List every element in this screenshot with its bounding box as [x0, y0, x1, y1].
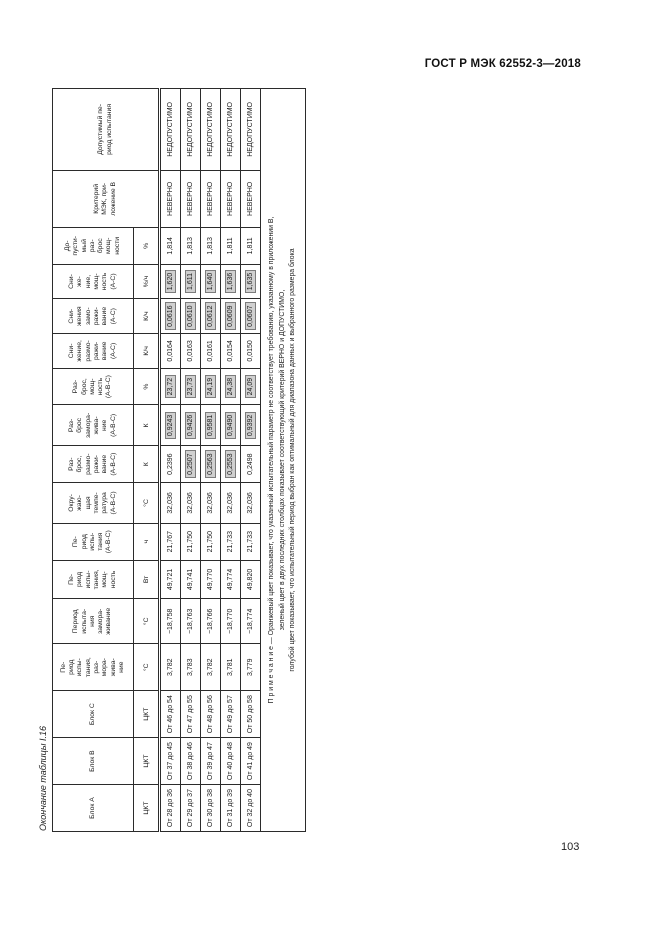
header-row: Блок АБлок ВБлок СПе- риод испы- тания, …: [53, 89, 134, 832]
unit-cell: °С: [134, 599, 160, 644]
data-cell: 23,73: [181, 368, 201, 405]
unit-cell: Вт: [134, 560, 160, 599]
highlighted-value: 23,73: [185, 375, 196, 399]
data-cell: От 29 до 37: [181, 785, 201, 832]
data-cell: −18,774: [241, 599, 261, 644]
highlighted-value: 23,72: [165, 375, 176, 399]
data-cell: От 41 до 49: [241, 738, 261, 785]
unit-cell: К: [134, 446, 160, 483]
table-head: Блок АБлок ВБлок СПе- риод испы- тания, …: [53, 89, 160, 832]
data-cell: 0,2498: [241, 446, 261, 483]
column-header: До- пусти- мый раз- брос мощ- ности: [53, 227, 134, 264]
data-cell: 0,0154: [221, 334, 241, 369]
data-cell: НЕДОПУСТИМО: [181, 89, 201, 171]
unit-cell: ч: [134, 523, 160, 560]
data-cell: −18,766: [201, 599, 221, 644]
data-cell: −18,770: [221, 599, 241, 644]
data-cell: 49,774: [221, 560, 241, 599]
data-cell: 0,0612: [201, 299, 221, 334]
column-header: Блок В: [53, 738, 134, 785]
data-cell: 32,036: [181, 483, 201, 524]
column-header: Допустимый пе- риод испытания: [53, 89, 160, 171]
data-cell: НЕВЕРНО: [221, 170, 241, 227]
data-cell: НЕДОПУСТИМО: [241, 89, 261, 171]
highlighted-value: 0,0616: [165, 303, 176, 330]
column-header: Раз- брос замора- жива- ние (А-В-С): [53, 405, 134, 446]
note-line: зеленый цвет в двух последних столбцах п…: [278, 89, 288, 831]
data-cell: 0,9243: [160, 405, 181, 446]
table-row: От 30 до 38От 39 до 47От 48 до 563,782−1…: [201, 89, 221, 832]
data-cell: 1,813: [201, 227, 221, 264]
highlighted-value: 0,0612: [205, 303, 216, 330]
unit-cell: ЦКТ: [134, 785, 160, 832]
column-header: Раз- брос, размо- ражи- вание (А-В-С): [53, 446, 134, 483]
data-cell: 1,640: [201, 264, 221, 299]
data-cell: НЕВЕРНО: [181, 170, 201, 227]
data-cell: 49,820: [241, 560, 261, 599]
highlighted-value: 0,2507: [185, 450, 196, 477]
data-cell: НЕДОПУСТИМО: [221, 89, 241, 171]
data-cell: 21,733: [221, 523, 241, 560]
note-row: П р и м е ч а н и е — Оранжевый цвет пок…: [261, 89, 306, 832]
data-cell: 3,782: [201, 644, 221, 691]
column-header: Пе- риод испы- тания, мощ- ность: [53, 560, 134, 599]
highlighted-value: 1,640: [205, 270, 216, 294]
data-cell: 3,782: [160, 644, 181, 691]
results-table: Блок АБлок ВБлок СПе- риод испы- тания, …: [52, 88, 306, 832]
unit-cell: ЦКТ: [134, 738, 160, 785]
data-cell: От 38 до 46: [181, 738, 201, 785]
table-row: От 32 до 40От 41 до 49От 50 до 583,779−1…: [241, 89, 261, 832]
data-cell: 0,0616: [160, 299, 181, 334]
column-header: Окру- жаю- щая темпе- ратура (А-В-С): [53, 483, 134, 524]
data-cell: От 28 до 36: [160, 785, 181, 832]
note-line: П р и м е ч а н и е — Оранжевый цвет пок…: [267, 89, 277, 831]
data-cell: 0,9581: [201, 405, 221, 446]
doc-header: ГОСТ Р МЭК 62552-3—2018: [425, 58, 581, 70]
data-cell: 3,779: [241, 644, 261, 691]
data-cell: 0,2563: [201, 446, 221, 483]
unit-cell: К/ч: [134, 299, 160, 334]
table-row: От 29 до 37От 38 до 46От 47 до 553,783−1…: [181, 89, 201, 832]
data-cell: 1,813: [181, 227, 201, 264]
highlighted-value: 0,9490: [225, 412, 236, 439]
data-cell: 0,2396: [160, 446, 181, 483]
highlighted-value: 1,636: [225, 270, 236, 294]
page: ГОСТ Р МЭК 62552-3—2018 Окончание таблиц…: [0, 0, 661, 935]
data-cell: От 40 до 48: [221, 738, 241, 785]
highlighted-value: 0,9581: [205, 412, 216, 439]
data-cell: 0,9392: [241, 405, 261, 446]
column-header: Раз- брос, мощ- ность (А-В-С): [53, 368, 134, 405]
unit-cell: %: [134, 368, 160, 405]
data-cell: НЕВЕРНО: [241, 170, 261, 227]
data-cell: НЕДОПУСТИМО: [201, 89, 221, 171]
data-cell: −18,763: [181, 599, 201, 644]
unit-cell: К: [134, 405, 160, 446]
data-cell: 0,9490: [221, 405, 241, 446]
data-cell: 0,0161: [201, 334, 221, 369]
data-cell: 3,783: [181, 644, 201, 691]
highlighted-value: 0,0607: [245, 303, 256, 330]
column-header: Критерий МЭК, при- ложение В: [53, 170, 160, 227]
note: П р и м е ч а н и е — Оранжевый цвет пок…: [261, 89, 306, 832]
data-cell: От 37 до 45: [160, 738, 181, 785]
highlighted-value: 24,09: [245, 375, 256, 399]
column-header: Блок С: [53, 691, 134, 738]
table-body: От 28 до 36От 37 до 45От 46 до 543,782−1…: [160, 89, 306, 832]
highlighted-value: 24,38: [225, 375, 236, 399]
data-cell: От 48 до 56: [201, 691, 221, 738]
data-cell: 21,733: [241, 523, 261, 560]
column-header: Период испыта- ния замора- живание: [53, 599, 134, 644]
highlighted-value: 1,635: [245, 270, 256, 294]
data-cell: 3,781: [221, 644, 241, 691]
data-cell: От 47 до 55: [181, 691, 201, 738]
data-cell: 0,0150: [241, 334, 261, 369]
data-cell: От 50 до 58: [241, 691, 261, 738]
data-cell: 1,611: [181, 264, 201, 299]
data-cell: −18,758: [160, 599, 181, 644]
data-cell: 24,38: [221, 368, 241, 405]
data-cell: 1,620: [160, 264, 181, 299]
column-header: Сни- жения замо- ражи- вание (А-С): [53, 299, 134, 334]
data-cell: 1,811: [221, 227, 241, 264]
data-cell: 49,770: [201, 560, 221, 599]
column-header: Сни- жение, размо- ражи- вание (А-С): [53, 334, 134, 369]
data-cell: 0,9426: [181, 405, 201, 446]
highlighted-value: 24,19: [205, 375, 216, 399]
highlighted-value: 1,611: [185, 270, 196, 293]
highlighted-value: 0,0610: [185, 303, 196, 330]
unit-cell: ЦКТ: [134, 691, 160, 738]
column-header: Пе- риод испы- тания (А-В-С): [53, 523, 134, 560]
data-cell: 24,19: [201, 368, 221, 405]
data-cell: 32,036: [160, 483, 181, 524]
table-row: От 31 до 39От 40 до 48От 49 до 573,781−1…: [221, 89, 241, 832]
unit-cell: %: [134, 227, 160, 264]
page-number: 103: [561, 841, 579, 853]
data-cell: 49,721: [160, 560, 181, 599]
data-cell: От 31 до 39: [221, 785, 241, 832]
data-cell: 0,2553: [221, 446, 241, 483]
data-cell: 0,0164: [160, 334, 181, 369]
unit-cell: К/ч: [134, 334, 160, 369]
data-cell: 1,811: [241, 227, 261, 264]
data-cell: 0,0610: [181, 299, 201, 334]
data-cell: НЕДОПУСТИМО: [160, 89, 181, 171]
highlighted-value: 0,0609: [225, 303, 236, 330]
table-sheet: Окончание таблицы I.16 Блок АБлок ВБлок …: [38, 88, 310, 832]
column-header: Блок А: [53, 785, 134, 832]
data-cell: 24,09: [241, 368, 261, 405]
data-cell: 1,635: [241, 264, 261, 299]
data-cell: 1,636: [221, 264, 241, 299]
table-row: От 28 до 36От 37 до 45От 46 до 543,782−1…: [160, 89, 181, 832]
data-cell: 49,741: [181, 560, 201, 599]
data-cell: 0,0163: [181, 334, 201, 369]
unit-cell: °С: [134, 644, 160, 691]
column-header: Сни- же- ние, мощ- ность (А-С): [53, 264, 134, 299]
rotated-table-region: Окончание таблицы I.16 Блок АБлок ВБлок …: [38, 88, 310, 832]
data-cell: НЕВЕРНО: [160, 170, 181, 227]
data-cell: 0,0609: [221, 299, 241, 334]
data-cell: От 39 до 47: [201, 738, 221, 785]
highlighted-value: 0,9392: [245, 412, 256, 439]
data-cell: 0,2507: [181, 446, 201, 483]
highlighted-value: 0,2563: [205, 450, 216, 477]
unit-cell: °С: [134, 483, 160, 524]
data-cell: От 32 до 40: [241, 785, 261, 832]
highlighted-value: 0,9426: [185, 412, 196, 439]
note-line: голубой цвет показывает, что испытательн…: [288, 89, 298, 831]
highlighted-value: 0,9243: [165, 412, 176, 439]
highlighted-value: 1,620: [165, 270, 176, 294]
data-cell: НЕВЕРНО: [201, 170, 221, 227]
data-cell: 32,036: [201, 483, 221, 524]
data-cell: От 49 до 57: [221, 691, 241, 738]
highlighted-value: 0,2553: [225, 450, 236, 477]
data-cell: 32,036: [241, 483, 261, 524]
column-header: Пе- риод испы- тания, раз- мора- жива- н…: [53, 644, 134, 691]
data-cell: 21,750: [181, 523, 201, 560]
data-cell: 32,036: [221, 483, 241, 524]
data-cell: От 30 до 38: [201, 785, 221, 832]
data-cell: 23,72: [160, 368, 181, 405]
data-cell: 21,767: [160, 523, 181, 560]
data-cell: 1,814: [160, 227, 181, 264]
unit-cell: %/ч: [134, 264, 160, 299]
data-cell: 21,750: [201, 523, 221, 560]
table-title: Окончание таблицы I.16: [38, 88, 48, 831]
data-cell: 0,0607: [241, 299, 261, 334]
data-cell: От 46 до 54: [160, 691, 181, 738]
